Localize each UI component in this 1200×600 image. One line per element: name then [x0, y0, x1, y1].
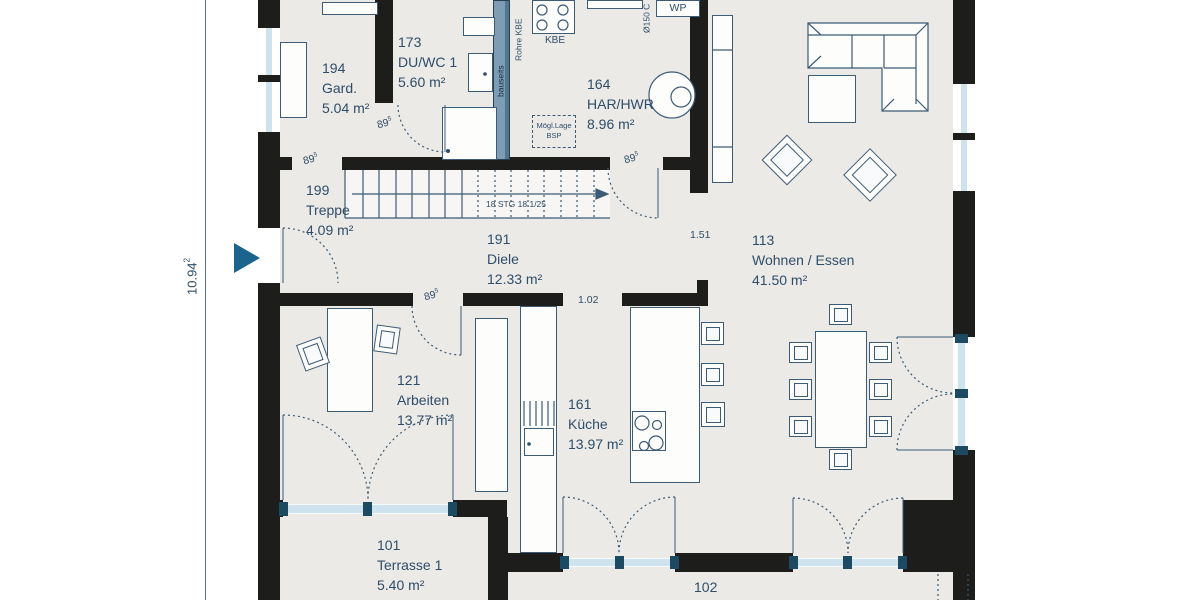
room-label-194: 194 Gard. 5.04 m²	[322, 58, 369, 118]
room-id: 101	[377, 535, 442, 555]
room-label-164: 164 HAR/HWR 8.96 m²	[587, 74, 654, 134]
door-leaves	[283, 105, 953, 553]
room-name: DU/WC 1	[398, 52, 457, 72]
room-id: 113	[752, 230, 854, 250]
room-id: 191	[487, 229, 542, 249]
room-area: 12.33 m²	[487, 269, 542, 289]
room-area: 13.97 m²	[568, 434, 623, 454]
room-area: 5.60 m²	[398, 72, 457, 92]
room-id: 194	[322, 58, 369, 78]
dim-opening-living: 1.51	[690, 229, 710, 241]
dim-opening-kitchen: 1.02	[578, 294, 598, 306]
room-name: Diele	[487, 249, 542, 269]
water-heater	[649, 72, 695, 118]
room-label-199: 199 Treppe 4.09 m²	[306, 180, 353, 240]
room-area: 13.77 m²	[397, 410, 452, 430]
sofa	[808, 23, 928, 111]
room-name: Arbeiten	[397, 390, 452, 410]
room-area: 41.50 m²	[752, 270, 854, 290]
room-area: 5.40 m²	[377, 575, 442, 595]
room-label-101: 101 Terrasse 1 5.40 m²	[377, 535, 442, 595]
kbe-circles	[537, 5, 568, 30]
room-name: Gard.	[322, 78, 369, 98]
room-name: HAR/HWR	[587, 94, 654, 114]
floor-plan: 10.942	[0, 0, 1200, 600]
room-area: 4.09 m²	[306, 220, 353, 240]
room-label-121: 121 Arbeiten 13.77 m²	[397, 370, 452, 430]
dishwasher-hatch	[524, 401, 554, 426]
room-label-161: 161 Küche 13.97 m²	[568, 394, 623, 454]
room-area: 8.96 m²	[587, 114, 654, 134]
room-label-102: 102 Terrasse 2	[694, 577, 759, 600]
room-name: Wohnen / Essen	[752, 250, 854, 270]
room-name: Küche	[568, 414, 623, 434]
room-name: Terrasse 1	[377, 555, 442, 575]
stair-note: 18 STG 18.1/25	[486, 199, 546, 209]
stair-arrow	[352, 189, 608, 199]
room-id: 121	[397, 370, 452, 390]
sideboard-lines	[712, 50, 733, 147]
room-label-173: 173 DU/WC 1 5.60 m²	[398, 32, 457, 92]
room-id: 102	[694, 577, 759, 597]
room-area: 5.04 m²	[322, 98, 369, 118]
room-label-113: 113 Wohnen / Essen 41.50 m²	[752, 230, 854, 290]
cooktop-burners	[635, 416, 663, 451]
door-swings	[283, 105, 968, 600]
room-label-191: 191 Diele 12.33 m²	[487, 229, 542, 289]
room-name: Treppe	[306, 200, 353, 220]
room-id: 164	[587, 74, 654, 94]
room-id: 199	[306, 180, 353, 200]
room-id: 161	[568, 394, 623, 414]
room-id: 173	[398, 32, 457, 52]
